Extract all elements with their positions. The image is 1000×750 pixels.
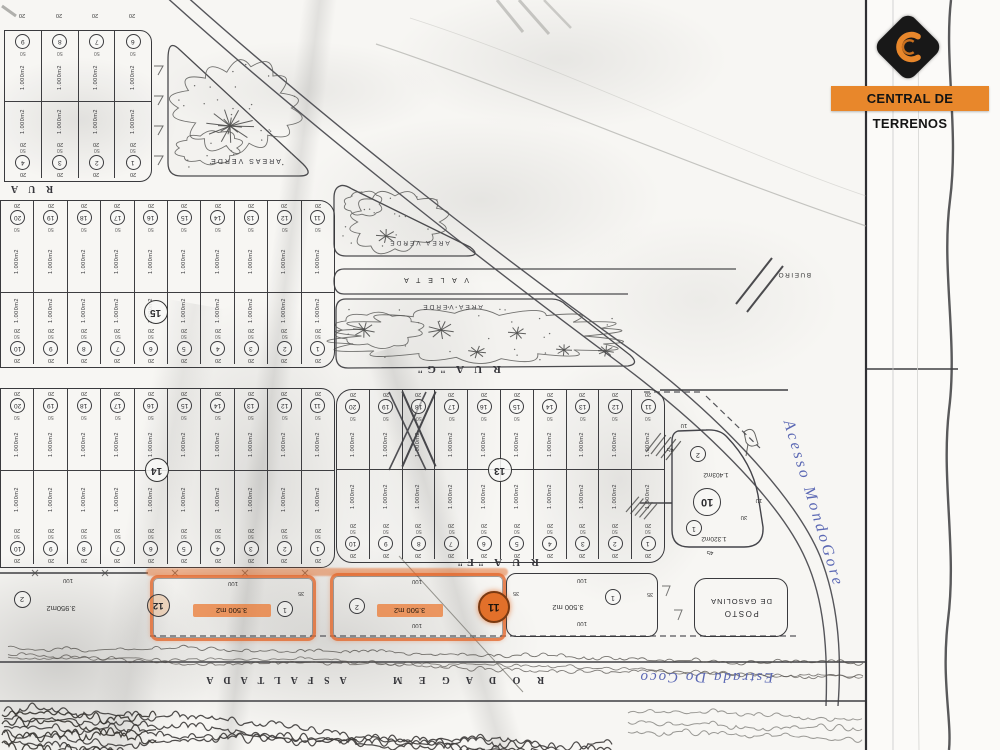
lot-number: 9 — [15, 34, 30, 49]
lot-number: 12 — [277, 210, 292, 225]
lot-number-text: 6 — [149, 545, 153, 552]
lot-frontage-dim: 20 — [215, 390, 221, 396]
lot-number-text: 14 — [546, 403, 553, 410]
lot-block-quadra-15: 2020501.000m22019501.000m22018501.000m22… — [0, 200, 335, 368]
lot-number: 1 — [641, 536, 656, 551]
lot-cell: 2013501.000m2 — [566, 390, 599, 469]
lot-cell: 8501.000m2 — [41, 31, 78, 101]
lot-area: 1.000m2 — [645, 471, 651, 522]
lot-frontage-dim: 20 — [215, 202, 221, 208]
lot-frontage-dim: 20 — [281, 390, 287, 396]
green-area-label: AREA VERDE — [400, 303, 504, 310]
lot-frontage-dim: 20 — [48, 390, 54, 396]
lot-area: 1.000m2 — [248, 232, 254, 291]
lot-cell: 7501.000m2 — [78, 31, 115, 101]
lot-cell: 1.000m22050520 — [500, 470, 533, 559]
lot-cell: 1.000m22050120 — [301, 293, 334, 364]
street-label-rua-f: R U A "F" — [436, 556, 556, 568]
lot-number: 2 — [277, 541, 292, 556]
lot-cell: 1.000m22050720 — [100, 471, 133, 564]
lot-number: 2 — [608, 536, 623, 551]
lot-area: 1.000m2 — [215, 420, 221, 469]
lot-cell: 1.000m22050120 — [301, 471, 334, 564]
lot-frontage-dim: 20 — [315, 557, 321, 563]
lot-frontage-dim: 20 — [130, 171, 136, 177]
lot-number-text: 15 — [181, 402, 188, 409]
lot-number-text: 7 — [449, 540, 453, 547]
lot-number: 10 — [10, 541, 25, 556]
lot-frontage-dim: 20 — [114, 390, 120, 396]
lot-number: 1 — [310, 341, 325, 356]
lot-cell: 2016501.000m2 — [467, 390, 500, 469]
lot-number: 1 — [126, 155, 141, 170]
lot-block-quadra-13: 2020501.000m22019501.000m22018501.000m22… — [336, 389, 665, 563]
lot-frontage-dim: 20 — [315, 202, 321, 208]
lot-depth-dim: 50 — [215, 533, 221, 539]
lot-number: 4 — [210, 341, 225, 356]
lot-cell: 1.000m22050220 — [78, 102, 115, 178]
lot-number-text: 13 — [247, 402, 254, 409]
lot-number-text: 2 — [283, 545, 287, 552]
lot-block-quadra-A: 9501.000m28501.000m27501.000m26501.000m2… — [4, 30, 152, 182]
street-label-rua-g: R U A "G" — [392, 363, 522, 375]
lot-frontage-dim: 20 — [93, 171, 99, 177]
lot-number-text: 7 — [116, 545, 120, 552]
lot-frontage-dim: 20 — [281, 557, 287, 563]
lot-cell: 1.000m22050320 — [566, 470, 599, 559]
lot-quadra11-b: 35 100 1 3.500 m2 100 35 — [506, 573, 658, 637]
lot-number: 17 — [110, 398, 125, 413]
lot-number: 15 — [509, 399, 524, 414]
lot-area: 1.000m2 — [481, 421, 487, 468]
quadra-number-highlighted: 11 — [478, 591, 510, 623]
lot-cell: 1.000m22050720 — [100, 293, 133, 364]
lot-number-text: 6 — [149, 345, 153, 352]
lot-rear-dim: 100 — [389, 622, 445, 628]
lot-area: 1.000m2 — [215, 232, 221, 291]
lot-number-text: 13 — [579, 403, 586, 410]
lot-frontage-dim: 20 — [181, 357, 187, 363]
lot-area: 1.000m2 — [81, 294, 87, 327]
lot-number-text: 12 — [281, 402, 288, 409]
lot-area: 1.000m2 — [612, 421, 618, 468]
lot-area: 3.500 m2 — [535, 603, 601, 612]
lot-cell: 1.000m220501020 — [337, 470, 369, 559]
lot-area: 1.000m2 — [315, 472, 321, 527]
lot-area: 1.000m2 — [57, 56, 63, 100]
lot-frontage-dim: 20 — [126, 12, 138, 18]
lot-number: 20 — [10, 210, 25, 225]
lot-number: 6 — [143, 541, 158, 556]
lot-area: 1.000m2 — [114, 472, 120, 527]
lot-number-text: 5 — [515, 540, 519, 547]
lot-number: 14 — [542, 399, 557, 414]
lot-number: 18 — [77, 210, 92, 225]
lot-frontage: 100 — [50, 577, 86, 583]
lot-number-text: 18 — [80, 214, 87, 221]
lot-depth-dim: 50 — [94, 147, 100, 153]
lot-cell: 2012501.000m2 — [267, 201, 300, 292]
lot-cell: 2017501.000m2 — [100, 201, 133, 292]
lot-number-text: 10 — [14, 345, 21, 352]
lot-area: 1.000m2 — [579, 471, 585, 522]
lot-number-text: 9 — [49, 345, 53, 352]
lot-frontage-dim: 20 — [481, 391, 487, 397]
lot-number: 5 — [177, 341, 192, 356]
lot-frontage-dim: 20 — [81, 557, 87, 563]
lot-number: 2 — [690, 446, 706, 462]
lot-row: 2020501.000m22019501.000m22018501.000m22… — [1, 389, 334, 470]
lot-cell: 1.000m22050620 — [467, 470, 500, 559]
lot-number: 15 — [177, 210, 192, 225]
lot-frontage-dim: 20 — [612, 552, 618, 558]
lot-area: 1.000m2 — [281, 420, 287, 469]
lot-depth-dim: 50 — [148, 533, 154, 539]
lot-area: 1.000m2 — [93, 103, 99, 141]
lot-frontage-dim: 20 — [81, 202, 87, 208]
lot-number-text: 17 — [114, 214, 121, 221]
lot-number: 10 — [345, 536, 360, 551]
lot-frontage-dim: 20 — [514, 391, 520, 397]
lot-cell: 2018501.000m2 — [67, 389, 100, 470]
lot-number: 12 — [608, 399, 623, 414]
lot-frontage-dim: 20 — [579, 552, 585, 558]
lot-number: 10 — [10, 341, 25, 356]
lot-depth-dim: 50 — [81, 333, 87, 339]
lot-depth-dim: 50 — [350, 528, 356, 534]
lot-depth-dim: 50 — [215, 333, 221, 339]
quadra-number: 14 — [145, 458, 169, 482]
lot-area: 1.000m2 — [181, 232, 187, 291]
lot-number-text: 15 — [513, 403, 520, 410]
lot-depth-dim: 50 — [282, 333, 288, 339]
lot-cell: 2017501.000m2 — [100, 389, 133, 470]
lot-number: 17 — [110, 210, 125, 225]
lot-area: 1.000m2 — [448, 471, 454, 522]
lot-area: 1.000m2 — [481, 471, 487, 522]
lot-cell: 2013501.000m2 — [234, 389, 267, 470]
lot-area: 1.000m2 — [281, 232, 287, 291]
lot-depth-dim: 50 — [248, 533, 254, 539]
lot-number: 17 — [444, 399, 459, 414]
lot-depth-dim: 50 — [115, 533, 121, 539]
lot-number: 16 — [143, 398, 158, 413]
lot-number-text: 19 — [47, 402, 54, 409]
lot-depth-dim: 50 — [580, 528, 586, 534]
lot-number: 11 — [310, 398, 325, 413]
lot-number-text: 16 — [480, 403, 487, 410]
lot-area: 1.403m2 — [692, 471, 740, 478]
lot-frontage-dim: 20 — [248, 357, 254, 363]
lot-number-text: 8 — [58, 38, 62, 45]
lot-number: 15 — [177, 398, 192, 413]
lot-cell: 1.000m22050120 — [114, 102, 151, 178]
road-label-asfaltada: A S F A L T A D A — [192, 674, 357, 685]
lot-depth-dim: 50 — [645, 528, 651, 534]
lot-depth-dim: 50 — [81, 533, 87, 539]
lot-number-text: 5 — [182, 345, 186, 352]
lot-area: 1.000m2 — [81, 472, 87, 527]
lot-number: 6 — [477, 536, 492, 551]
lot-frontage-dim: 20 — [350, 552, 356, 558]
lot-number: 12 — [277, 398, 292, 413]
lot-depth-dim: 50 — [181, 533, 187, 539]
lot-number-text: 20 — [14, 402, 21, 409]
q10-dim: 45 — [700, 549, 720, 555]
lot-cell: 1.000m22050320 — [41, 102, 78, 178]
lot-number-text: 12 — [281, 214, 288, 221]
lot-area: 1.000m2 — [181, 294, 187, 327]
lot-number: 8 — [52, 34, 67, 49]
lot-area: 3.950m2 — [26, 604, 96, 613]
lot-cell: 2014501.000m2 — [200, 201, 233, 292]
lot-area: 1.000m2 — [130, 103, 136, 141]
lot-area: 1.000m2 — [14, 294, 20, 327]
lot-area: 1.000m2 — [612, 471, 618, 522]
lot-number-text: 2 — [95, 159, 99, 166]
valeta-label: V A L E T A — [392, 276, 478, 283]
lot-cell: 2015501.000m2 — [500, 390, 533, 469]
lot-number-text: 8 — [82, 345, 86, 352]
lot-area: 1.000m2 — [645, 421, 651, 468]
lot-row: 2020501.000m22019501.000m22018501.000m22… — [1, 201, 334, 292]
lot-area: 1.000m2 — [48, 472, 54, 527]
lot-number-text: 1 — [316, 545, 320, 552]
lot-cell: 2018501.000m2 — [67, 201, 100, 292]
lot-frontage-dim: 20 — [645, 552, 651, 558]
lot-cell: 2016501.000m2 — [134, 201, 167, 292]
lot-row: 1.000m2205010201.000m220509201.000m22050… — [337, 469, 664, 559]
lot-depth-dim: 50 — [148, 333, 154, 339]
lot-cell: 2013501.000m2 — [234, 201, 267, 292]
lot-cell: 1.000m22050220 — [267, 471, 300, 564]
lot-row: 1.000m2205010201.000m220509201.000m22050… — [1, 470, 334, 564]
lot-number: 7 — [444, 536, 459, 551]
lot-row: 1.000m2205010201.000m220509201.000m22050… — [1, 292, 334, 364]
lot-number: 20 — [10, 398, 25, 413]
lot-frontage-dim: 20 — [57, 171, 63, 177]
lot-frontage-dim: 20 — [281, 202, 287, 208]
lot-number: 5 — [509, 536, 524, 551]
lot-side-dim: 35 — [643, 591, 657, 597]
lot-cell: 1.000m22050520 — [167, 293, 200, 364]
lot-number: 8 — [77, 341, 92, 356]
lot-area: 1.000m2 — [20, 56, 26, 100]
lot-area: 1.000m2 — [579, 421, 585, 468]
lot-cell: 1.000m220501020 — [1, 293, 33, 364]
lot-number-text: 14 — [214, 402, 221, 409]
lot-rear-dim: 100 — [557, 620, 607, 626]
lot-number: 1 — [686, 520, 702, 536]
lot-cell: 2012501.000m2 — [267, 389, 300, 470]
lot-area: 1.000m2 — [114, 294, 120, 327]
lot-number: 9 — [43, 541, 58, 556]
quadra-number-text: 13 — [494, 465, 505, 476]
lot-area: 1.000m2 — [20, 103, 26, 141]
lot-depth-dim: 50 — [383, 528, 389, 534]
lot-area: 1.000m2 — [415, 471, 421, 522]
lot-side-dim: 35 — [509, 590, 523, 596]
lot-number: 1 — [605, 589, 621, 605]
lot-frontage-dim: 20 — [148, 557, 154, 563]
lot-area: 1.000m2 — [514, 421, 520, 468]
lot-frontage-dim: 20 — [81, 357, 87, 363]
lot-depth-dim: 50 — [48, 533, 54, 539]
handwritten-road-name: Estrada Do Coco — [606, 668, 806, 685]
lot-cell: 2019501.000m2 — [33, 389, 66, 470]
lot-frontage-dim: 20 — [645, 391, 651, 397]
lot-frontage-dim: 20 — [350, 391, 356, 397]
lot-number: 1 — [310, 541, 325, 556]
lot-area: 1.000m2 — [248, 294, 254, 327]
street-label-rua: R U A — [4, 183, 56, 194]
lot-area: 1.000m2 — [48, 420, 54, 469]
lot-number-text: 4 — [548, 540, 552, 547]
lot-depth-dim: 50 — [449, 528, 455, 534]
lot-area: 1.000m2 — [57, 103, 63, 141]
lot-frontage-dim: 20 — [148, 202, 154, 208]
lot-number: 3 — [244, 541, 259, 556]
lot-frontage-dim: 20 — [248, 202, 254, 208]
lot-cell: 1.000m22050820 — [402, 470, 435, 559]
lot-depth-dim: 50 — [315, 533, 321, 539]
lot-number-text: 3 — [249, 545, 253, 552]
lot-number: 1 — [277, 601, 293, 617]
lot-number: 13 — [244, 398, 259, 413]
lot-number-text: 10 — [14, 545, 21, 552]
lot-number-text: 17 — [114, 402, 121, 409]
lot-number: 18 — [77, 398, 92, 413]
lot-frontage-dim: 20 — [14, 357, 20, 363]
lot-area: 1.000m2 — [350, 421, 356, 468]
lot-number-text: 6 — [482, 540, 486, 547]
lot-number-text: 3 — [58, 159, 62, 166]
lot-area: 1.000m2 — [81, 232, 87, 291]
lot-row: 1.000m220504201.000m220503201.000m220502… — [5, 101, 151, 178]
lot-number-text: 7 — [116, 345, 120, 352]
lot-frontage-dim: 20 — [14, 202, 20, 208]
lot-area: 1.000m2 — [114, 232, 120, 291]
lot-number: 2 — [89, 155, 104, 170]
lot-number-text: 12 — [612, 403, 619, 410]
lot-frontage-dim: 20 — [148, 357, 154, 363]
lot-cell: 1.000m22050420 — [200, 471, 233, 564]
lot-cell: 2014501.000m2 — [533, 390, 566, 469]
lot-number: 7 — [110, 341, 125, 356]
lot-cell: 1.000m22050820 — [67, 293, 100, 364]
lot-area: 1.000m2 — [14, 420, 20, 469]
lot-cell: 1.000m220501020 — [1, 471, 33, 564]
lot-cell: 2018501.000m2 — [402, 390, 435, 469]
lot-cell: 2011501.000m2 — [631, 390, 664, 469]
lot-cell: 2020501.000m2 — [337, 390, 369, 469]
lot-number: 6 — [143, 341, 158, 356]
lot-frontage: 100 — [205, 580, 261, 586]
lot-number: 3 — [575, 536, 590, 551]
lot-depth-dim: 50 — [20, 147, 26, 153]
lot-number-text: 4 — [216, 345, 220, 352]
lot-cell: 2019501.000m2 — [369, 390, 402, 469]
lot-area: 1.000m2 — [215, 472, 221, 527]
lot-depth-dim: 50 — [57, 147, 63, 153]
lot-number-text: 4 — [216, 545, 220, 552]
lot-area: 1.000m2 — [181, 472, 187, 527]
lot-frontage-dim: 20 — [315, 357, 321, 363]
lot-number-text: 19 — [47, 214, 54, 221]
lot-number-text: 7 — [95, 38, 99, 45]
lot-number-text: 2 — [283, 345, 287, 352]
lot-number-text: 3 — [581, 540, 585, 547]
lot-cell: 1.000m22050720 — [434, 470, 467, 559]
q10-dim: 10 — [750, 497, 768, 503]
lot-area: 1.000m2 — [81, 420, 87, 469]
lot-area: 1.000m2 — [130, 56, 136, 100]
lot-area: 1.000m2 — [281, 472, 287, 527]
lot-number-text: 16 — [147, 402, 154, 409]
lot-number-text: 13 — [247, 214, 254, 221]
lot-number-text: 16 — [147, 214, 154, 221]
lot-area: 1.000m2 — [315, 420, 321, 469]
lot-depth-dim: 50 — [514, 528, 520, 534]
quadra-number: 10 — [693, 488, 721, 516]
lot-cell: 2011501.000m2 — [301, 389, 334, 470]
lot-area: 1.320m2 — [690, 535, 738, 542]
lot-cell: 1.000m22050120 — [631, 470, 664, 559]
lot-number: 4 — [210, 541, 225, 556]
highlighted-area: 3.500 m2 — [193, 604, 271, 617]
lot-number: 20 — [345, 399, 360, 414]
lot-depth-dim: 50 — [248, 333, 254, 339]
lot-frontage-dim: 20 — [48, 357, 54, 363]
brand-banner: CENTRAL DE TERRENOS — [831, 86, 989, 111]
lot-frontage-dim: 20 — [383, 552, 389, 558]
lot-number: 19 — [43, 210, 58, 225]
lot-depth-dim: 50 — [14, 333, 20, 339]
lot-area: 1.000m2 — [14, 232, 20, 291]
lot-depth-dim: 50 — [416, 528, 422, 534]
lot-cell: 2019501.000m2 — [33, 201, 66, 292]
lot-cell: 1.000m22050420 — [533, 470, 566, 559]
lot-number-text: 10 — [349, 540, 356, 547]
lot-row: 9501.000m28501.000m27501.000m26501.000m2 — [5, 31, 151, 101]
lot-frontage-dim: 20 — [415, 552, 421, 558]
lot-number-text: 18 — [415, 403, 422, 410]
lot-number-text: 8 — [417, 540, 421, 547]
lot-frontage-dim: 20 — [89, 12, 101, 18]
lot-area: 1.000m2 — [248, 472, 254, 527]
lot-number-text: 1 — [131, 159, 135, 166]
lot-frontage-dim: 20 — [248, 557, 254, 563]
lot-number: 14 — [210, 398, 225, 413]
lot-cell: 1.000m22050420 — [5, 102, 41, 178]
lot-cell: 2011501.000m2 — [301, 201, 334, 292]
lot-cell: 6501.000m2 — [114, 31, 151, 101]
lot-number-text: 2 — [613, 540, 617, 547]
lot-frontage-dim: 20 — [81, 390, 87, 396]
lot-cell: 1.000m22050820 — [67, 471, 100, 564]
lot-number: 7 — [89, 34, 104, 49]
lot-area: 1.000m2 — [315, 232, 321, 291]
lot-frontage: 100 — [557, 577, 607, 583]
lot-depth-dim: 50 — [130, 147, 136, 153]
lot-number-text: 20 — [14, 214, 21, 221]
lot-frontage-dim: 20 — [14, 557, 20, 563]
lot-frontage-dim: 20 — [181, 390, 187, 396]
lot-frontage-dim: 20 — [448, 391, 454, 397]
lot-frontage-dim: 20 — [20, 171, 26, 177]
posto-label-line1: POSTO — [723, 609, 758, 618]
lot-area: 1.000m2 — [281, 294, 287, 327]
